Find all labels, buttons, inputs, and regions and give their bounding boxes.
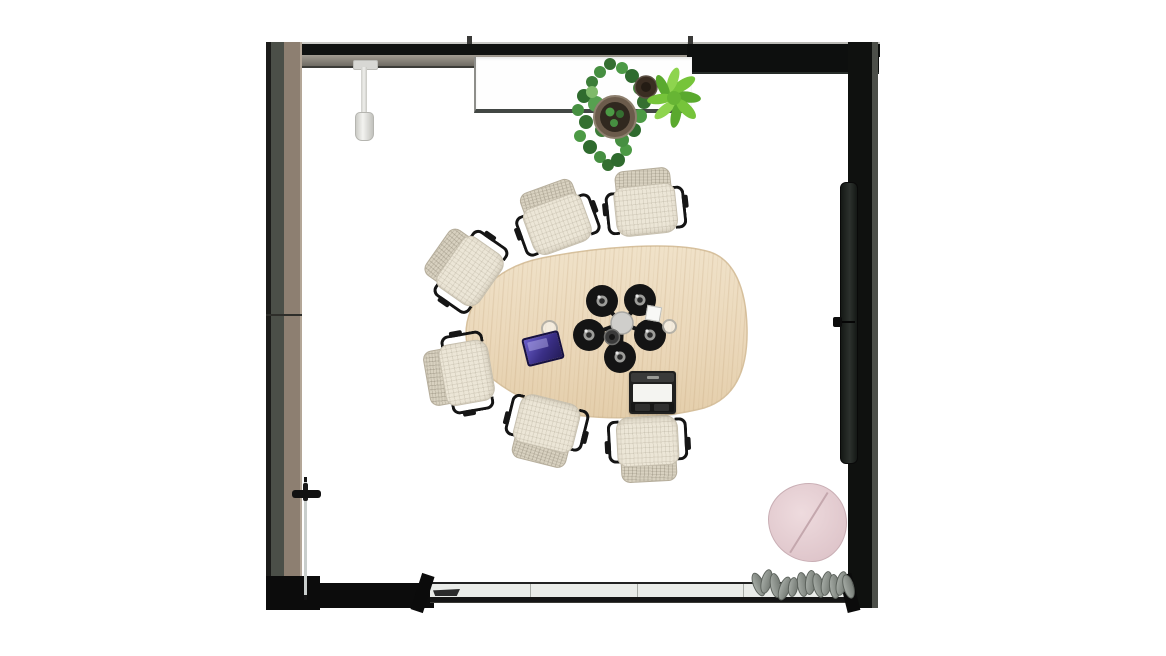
- pothos-plant: [572, 58, 651, 171]
- door-handle[interactable]: [292, 490, 321, 498]
- potted-plants[interactable]: [556, 52, 716, 177]
- cup[interactable]: [662, 319, 677, 334]
- fern-plant: [646, 66, 701, 129]
- speaker-puck: [605, 330, 620, 345]
- chair-seat: [437, 338, 497, 408]
- wall-panel-joint: [841, 321, 855, 323]
- laptop-key-block: [635, 404, 650, 411]
- glass-mullion: [637, 584, 638, 597]
- pouf-seam: [789, 492, 828, 553]
- small-plant-pot: [635, 76, 657, 98]
- chair-bottom-right[interactable]: [614, 414, 681, 483]
- glass-mullion: [530, 584, 531, 597]
- glass-mullion: [743, 584, 744, 597]
- tablet-screen: [527, 338, 549, 352]
- wall-seam-tick: [467, 36, 472, 44]
- left-wall-joint: [266, 314, 302, 316]
- laptop-logo: [647, 376, 659, 379]
- dispenser-rod: [361, 67, 367, 117]
- curtain[interactable]: [753, 568, 853, 598]
- chair-seat: [612, 182, 679, 238]
- dispenser-icon[interactable]: [355, 112, 374, 141]
- left-wall: [266, 42, 302, 608]
- laptop-key-block: [654, 404, 669, 411]
- wall-screen-panel[interactable]: [840, 182, 858, 464]
- chair-left-lower[interactable]: [421, 337, 497, 411]
- wall-seam-tick: [688, 36, 693, 44]
- chair-bottom-left[interactable]: [506, 391, 584, 471]
- bottom-wall: [266, 583, 434, 608]
- pouf[interactable]: [768, 483, 847, 562]
- floorplan-canvas: [0, 0, 1166, 656]
- chair-seat: [615, 414, 680, 467]
- note-pad[interactable]: [645, 305, 662, 322]
- chair-top-right[interactable]: [610, 166, 681, 238]
- laptop-keyboard-area: [633, 384, 672, 402]
- laptop[interactable]: [629, 371, 676, 414]
- wall-panel-knob[interactable]: [833, 317, 842, 327]
